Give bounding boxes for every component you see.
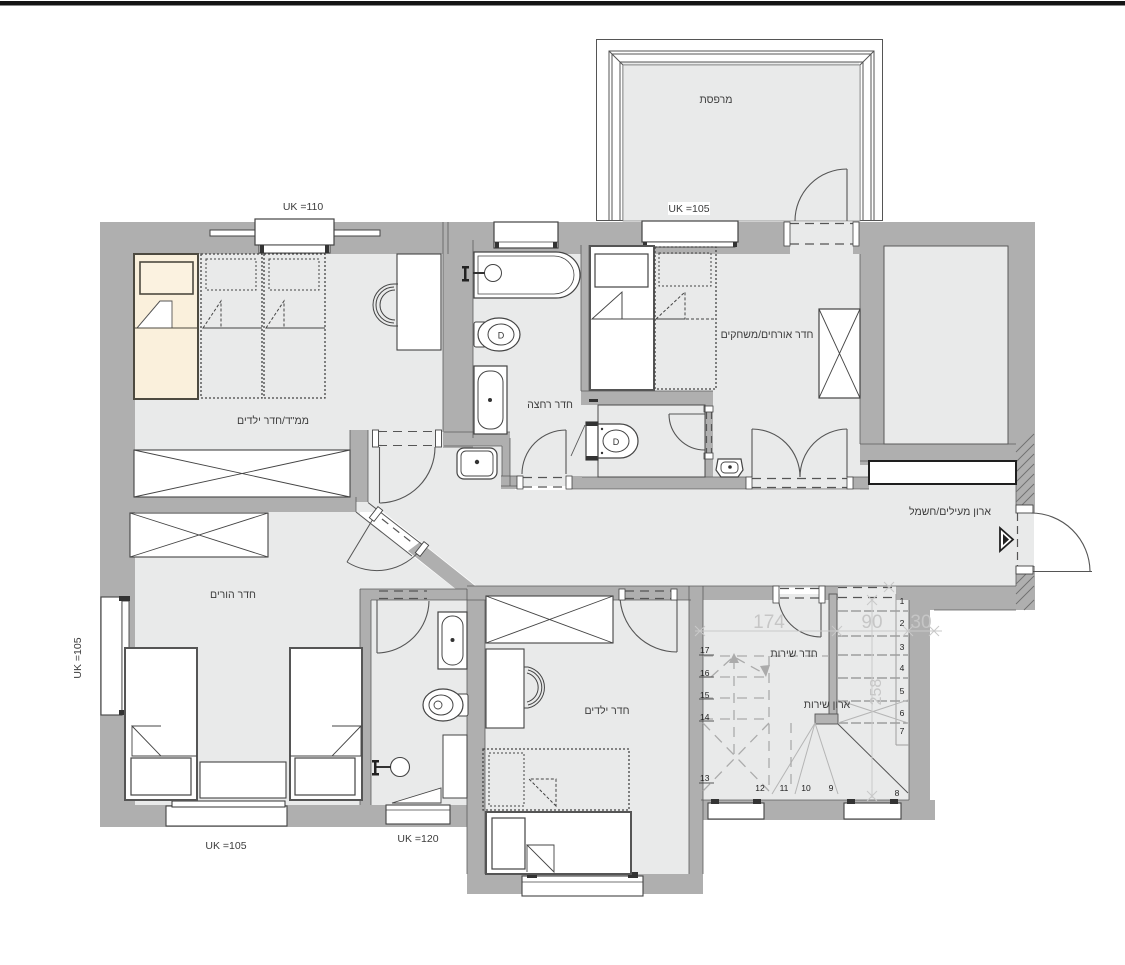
svg-text:UK =105: UK =105: [668, 203, 709, 215]
svg-text:7: 7: [900, 726, 905, 736]
svg-text:2: 2: [900, 618, 905, 628]
svg-text:UK =105: UK =105: [205, 840, 246, 852]
svg-text:ארון שירות: ארון שירות: [804, 699, 851, 711]
svg-text:17: 17: [700, 645, 710, 655]
svg-text:4: 4: [900, 663, 905, 673]
svg-text:90: 90: [861, 612, 882, 633]
svg-text:12: 12: [755, 783, 765, 793]
svg-text:מרפסת: מרפסת: [700, 94, 733, 106]
svg-text:10: 10: [801, 783, 811, 793]
svg-text:13: 13: [700, 773, 710, 783]
svg-text:UK =110: UK =110: [283, 201, 324, 213]
svg-text:8: 8: [895, 788, 900, 798]
svg-text:5: 5: [900, 686, 905, 696]
svg-text:3: 3: [900, 642, 905, 652]
svg-text:UK =105: UK =105: [72, 637, 84, 678]
svg-text:1: 1: [900, 596, 905, 606]
svg-text:30: 30: [910, 612, 931, 633]
svg-text:258: 258: [868, 679, 885, 706]
svg-text:14: 14: [700, 712, 710, 722]
svg-text:16: 16: [700, 668, 710, 678]
svg-text:חדר רחצה: חדר רחצה: [527, 399, 573, 411]
svg-text:ממ"ד/חדר ילדים: ממ"ד/חדר ילדים: [237, 415, 309, 427]
svg-text:11: 11: [780, 783, 789, 793]
svg-text:חדר שירות: חדר שירות: [770, 648, 817, 660]
svg-text:חדר הורים: חדר הורים: [210, 589, 256, 601]
svg-text:ארון מעילים/חשמל: ארון מעילים/חשמל: [909, 506, 991, 518]
svg-text:15: 15: [700, 690, 710, 700]
svg-text:6: 6: [900, 708, 905, 718]
svg-text:חדר ילדים: חדר ילדים: [584, 705, 629, 717]
svg-text:D: D: [498, 331, 505, 341]
svg-text:D: D: [613, 437, 620, 447]
svg-text:חדר אורחים/משחקים: חדר אורחים/משחקים: [721, 329, 814, 341]
svg-text:UK =120: UK =120: [397, 833, 438, 845]
svg-text:9: 9: [829, 783, 834, 793]
svg-text:174: 174: [753, 612, 785, 633]
